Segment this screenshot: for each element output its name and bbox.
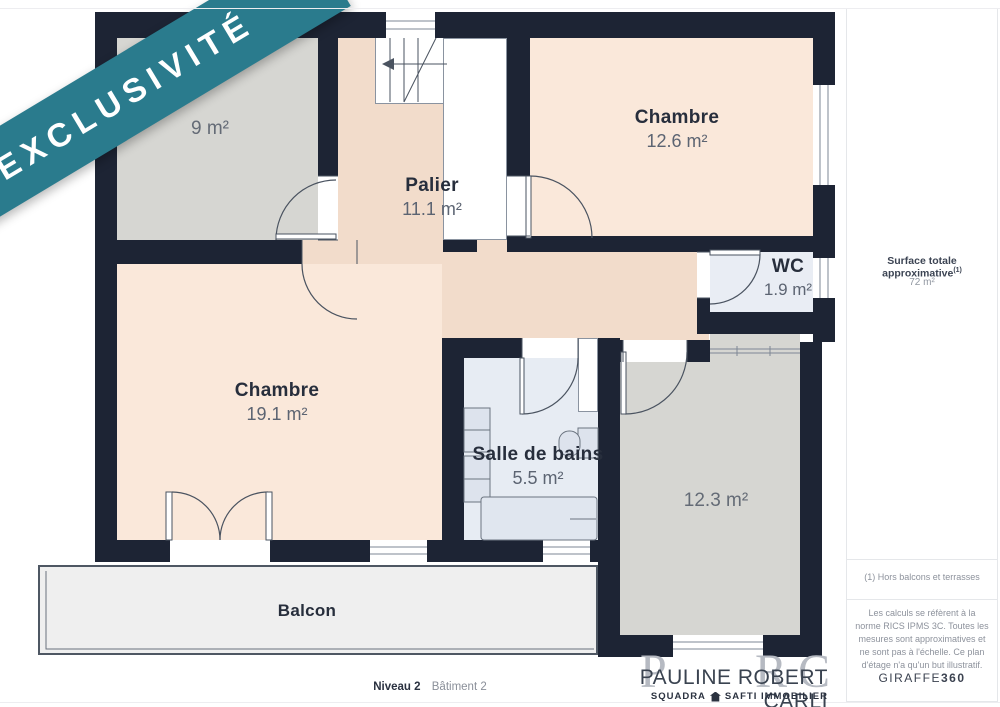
label-chambre-126: Chambre 12.6 m² bbox=[597, 106, 757, 152]
staircase bbox=[375, 38, 443, 104]
door-slot-sdb bbox=[522, 338, 578, 358]
room-name: Chambre bbox=[597, 106, 757, 130]
level-caption: Niveau 2 Bâtiment 2 bbox=[340, 681, 520, 693]
room-name: Salle de bains bbox=[438, 443, 638, 467]
wall-void-stub bbox=[443, 240, 477, 252]
surface-label-text: Surface totale approximative bbox=[882, 255, 957, 280]
wall-chambre126-left bbox=[507, 38, 530, 178]
wall-9m2-right bbox=[318, 38, 338, 178]
label-chambre-191: Chambre 19.1 m² bbox=[197, 379, 357, 425]
label-room-9m2: 9 m² bbox=[160, 117, 260, 141]
door-slot-chambre126 bbox=[507, 176, 530, 236]
window-sdb-bottom bbox=[543, 540, 590, 562]
room-area: 11.1 m² bbox=[372, 198, 492, 221]
room-name: Chambre bbox=[197, 379, 357, 403]
room-123-upper-fill bbox=[710, 334, 800, 352]
footnote-1: (1) Hors balcons et terrasses bbox=[847, 572, 997, 582]
wall-right-lower bbox=[800, 342, 822, 657]
corridor-fill bbox=[442, 240, 709, 352]
building-label: Bâtiment 2 bbox=[432, 681, 487, 693]
window-chambre126-right bbox=[813, 85, 835, 185]
room-name: WC bbox=[745, 255, 831, 279]
agency-right: SAFTI IMMOBILIER bbox=[725, 691, 828, 702]
level-label: Niveau 2 bbox=[373, 681, 420, 693]
wall-corridor-south-b bbox=[687, 340, 710, 362]
room-area: 9 m² bbox=[160, 117, 260, 141]
disclaimer-text: Les calculs se réfèrent à la norme RICS … bbox=[855, 607, 989, 672]
room-name: Palier bbox=[372, 174, 492, 198]
room-name: Balcon bbox=[257, 600, 357, 621]
surface-total-value: 72 m² bbox=[847, 277, 997, 288]
surface-total-label: Surface totale approximative(1) bbox=[847, 255, 997, 280]
label-wc: WC 1.9 m² bbox=[745, 255, 831, 300]
sidebar-divider-1 bbox=[847, 559, 997, 560]
room-area: 1.9 m² bbox=[745, 279, 831, 300]
sdb-niche bbox=[578, 338, 598, 412]
wall-123-left-lower bbox=[598, 555, 620, 647]
wall-chambre191-top bbox=[95, 240, 302, 264]
wall-sdb-left bbox=[442, 338, 464, 540]
window-chambre191-bottom bbox=[370, 540, 427, 562]
house-icon bbox=[710, 692, 721, 702]
french-door-opening bbox=[170, 540, 270, 562]
door-slot-wc bbox=[697, 252, 710, 298]
wall-wc-bottom bbox=[697, 312, 835, 334]
label-balcon: Balcon bbox=[257, 600, 357, 621]
giraffe360-brand: GIRAFFE360 bbox=[847, 671, 997, 685]
agent-logo: P R C PAULINE ROBERT CARLI SQUADRA SAFTI… bbox=[600, 648, 828, 706]
room-area: 12.6 m² bbox=[597, 130, 757, 153]
label-salle-de-bains: Salle de bains 5.5 m² bbox=[438, 443, 638, 489]
door-slot-123 bbox=[623, 340, 687, 362]
label-palier: Palier 11.1 m² bbox=[372, 174, 492, 220]
agency-left: SQUADRA bbox=[651, 691, 706, 702]
info-sidebar: Surface totale approximative(1) 72 m² (1… bbox=[846, 8, 998, 702]
window-stairs-top bbox=[386, 12, 435, 38]
wall-chambre126-bottom bbox=[507, 236, 813, 252]
agency-tagline: SQUADRA SAFTI IMMOBILIER bbox=[651, 691, 828, 702]
page-top-rule bbox=[0, 8, 1000, 9]
sidebar-divider-2 bbox=[847, 599, 997, 600]
floor-plan-page: 9 m² Palier 11.1 m² Chambre 12.6 m² WC 1… bbox=[0, 0, 1000, 707]
room-area: 19.1 m² bbox=[197, 403, 357, 426]
page-bottom-rule bbox=[0, 702, 1000, 703]
corridor-west-fill bbox=[302, 240, 442, 264]
room-area: 5.5 m² bbox=[438, 467, 638, 490]
brand-suffix: 360 bbox=[941, 671, 966, 685]
brand-name: GIRAFFE bbox=[878, 671, 941, 685]
room-area: 12.3 m² bbox=[666, 489, 766, 513]
label-room-123: 12.3 m² bbox=[666, 489, 766, 513]
surface-footnote-marker: (1) bbox=[953, 267, 962, 274]
door-slot-9m2 bbox=[318, 176, 338, 240]
